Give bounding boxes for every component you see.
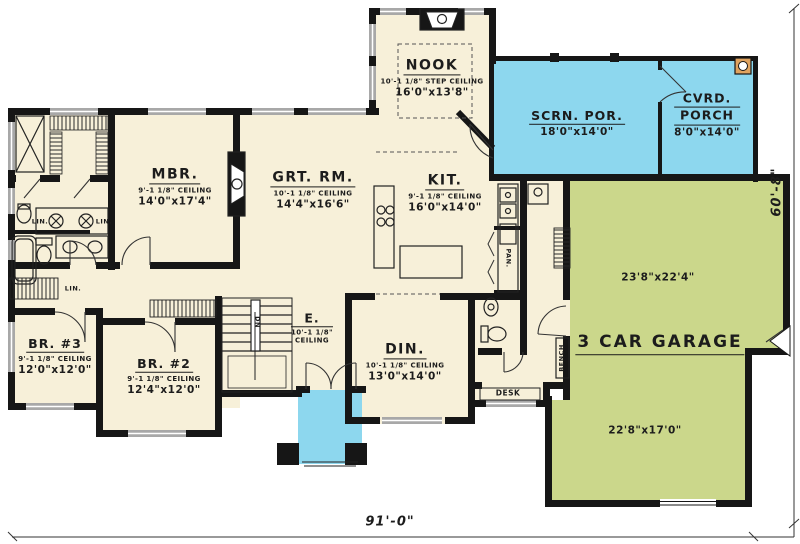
stairs-dn-label: DN [253,316,260,328]
room-label-br3: BR. #3 9'-1 1/8" CEILING 12'0"x12'0" [18,334,92,376]
porch-post [735,58,751,74]
room-label-cvrd-porch: CVRD. PORCH 8'0"x14'0" [674,92,740,139]
room-label-kit: KIT. 9'-1 1/8" CEILING 16'0"x14'0" [408,170,482,213]
garage-size-lower: 22'8"x17'0" [608,423,681,436]
br2-closet [150,300,216,317]
room-label-din: DIN. 10'-1 1/8" CEILING 13'0"x14'0" [366,339,445,382]
linen-label-3: LIN. [65,285,81,292]
linen-closet [10,278,58,299]
fireplace-great-room [228,152,245,216]
room-label-entry: E. 10'-1 1/8" CEILING [291,311,333,344]
room-label-garage: 3 CAR GARAGE [575,333,744,355]
linen-label-2: LIN. [96,218,112,225]
bench-label: BENCH [558,344,565,372]
porch-pillar-left [277,443,299,465]
floor-plan: MBR. 9'-1 1/8" CEILING 14'0"x17'4" GRT. … [0,0,800,544]
desk-label: DESK [496,390,521,399]
room-label-br2: BR. #2 9'-1 1/8" CEILING 12'4"x12'0" [127,354,201,396]
room-label-scrn-por: SCRN. POR. 18'0"x14'0" [529,106,625,138]
room-label-nook: NOOK 10'-1 1/8" STEP CEILING 16'0"x13'8" [380,55,483,98]
pantry-label: PAN. [504,248,511,267]
garage-door [660,499,716,508]
mud-closet [554,228,570,268]
fireplace-nook [420,9,464,30]
garage-size-upper: 23'8"x22'4" [621,270,694,283]
room-label-mbr: MBR. 9'-1 1/8" CEILING 14'0"x17'4" [138,164,212,207]
dimension-height: 60'-8" [771,167,786,216]
dimension-width: 91'-0" [365,516,414,531]
room-label-grt-rm: GRT. RM. 10'-1 1/8" CEILING 14'4"x16'6" [270,167,355,210]
linen-label-1: LIN. [32,218,48,225]
